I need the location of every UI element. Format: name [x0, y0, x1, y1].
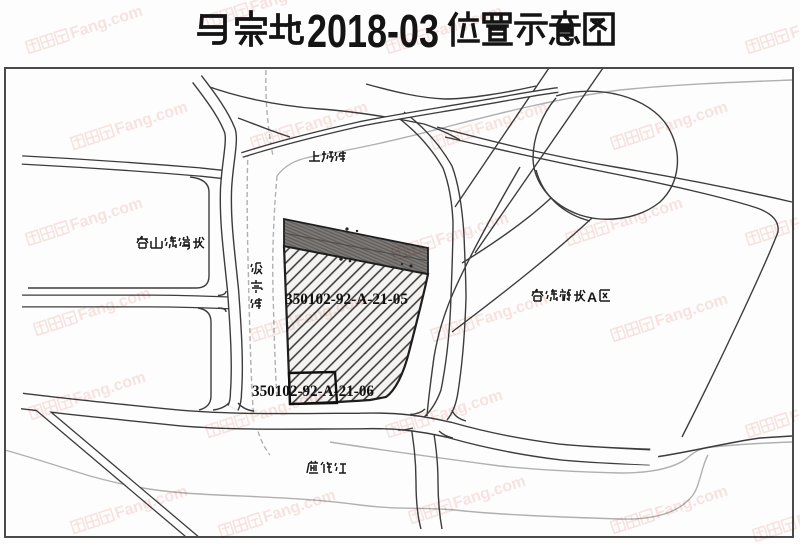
- svg-text:A: A: [587, 289, 597, 305]
